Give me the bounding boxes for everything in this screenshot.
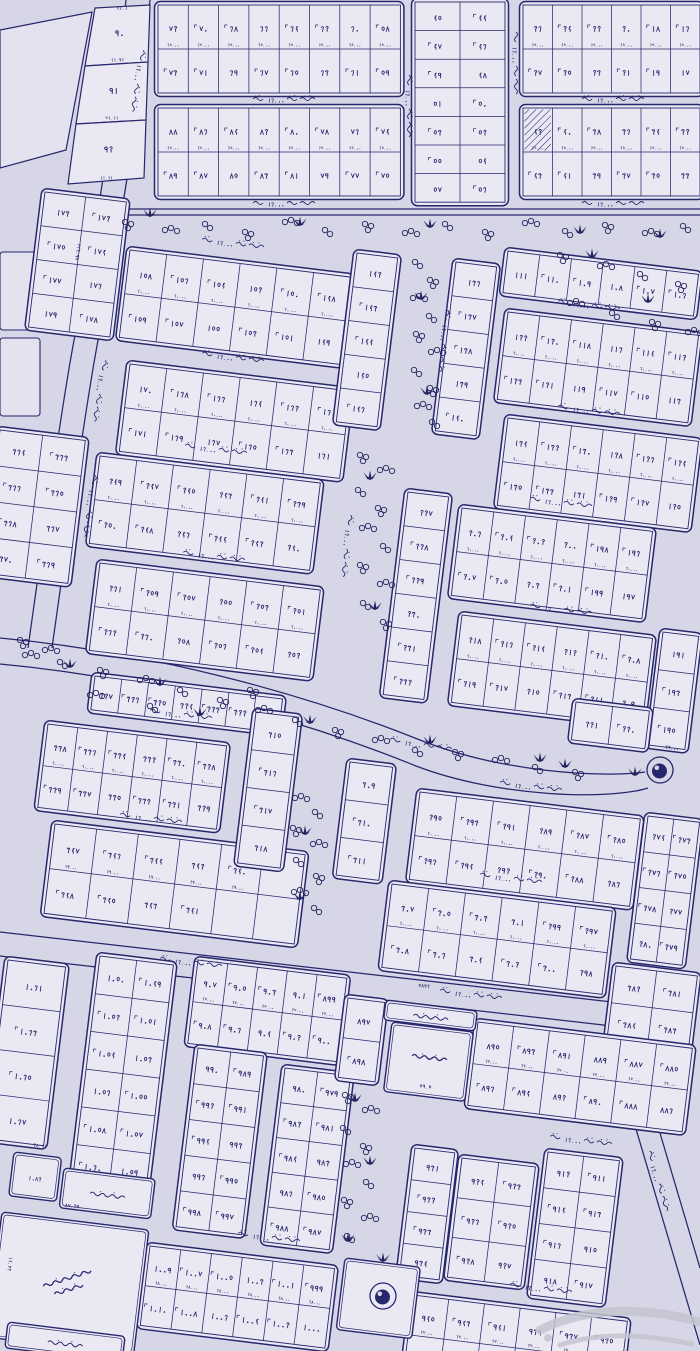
block-M1 [25,188,131,341]
partial-plot [0,338,40,416]
block-T2 [155,105,404,200]
block-S220 [567,698,653,753]
block-S923 [443,1154,539,1290]
subdivision-map: شارع عرض ١٦٫٠٠ متر مستوصف مدرسة متوسطة ب… [0,0,700,1351]
blueprint-canvas [0,0,700,1351]
clinic-plot [383,1022,473,1101]
block-T4 [520,2,700,97]
block-T1 [155,2,404,97]
block-T5 [520,105,700,200]
block-T3 [412,0,509,206]
plot-91 [76,62,148,124]
plot-1083 [9,1152,62,1202]
hatched-mosque-plot [525,110,552,151]
plot-92 [68,120,146,184]
